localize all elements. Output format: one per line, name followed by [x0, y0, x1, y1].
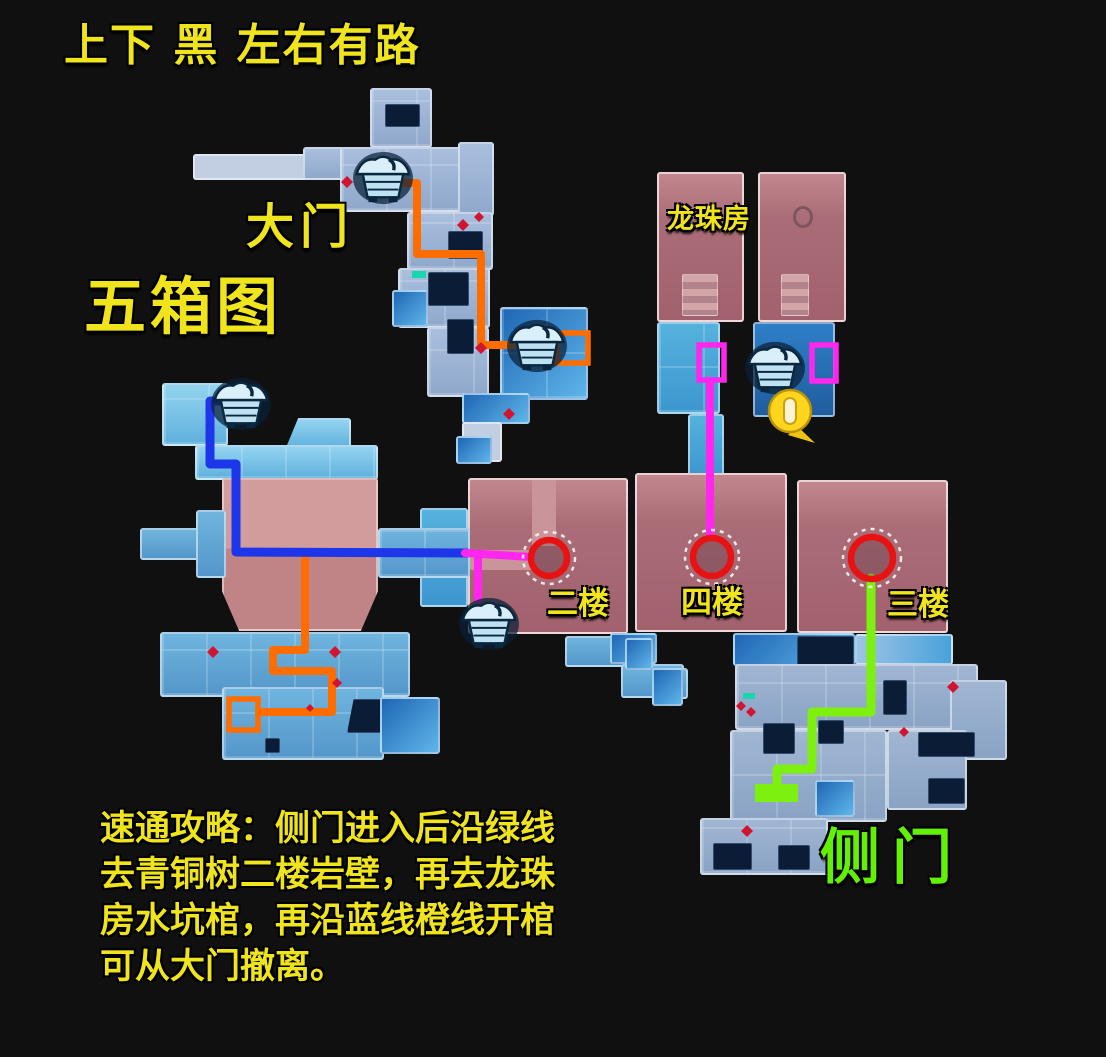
- guide-line: 速通攻略：侧门进入后沿绿线: [100, 806, 555, 852]
- game-map-screenshot: 上下 黑 左右有路 大门 五箱图 龙珠房 二楼 四楼 三楼 侧门 速通攻略：侧门…: [0, 0, 1106, 1057]
- loot-spot-rect-marker: [699, 345, 724, 380]
- guide-line: 去青铜树二楼岩壁，再去龙珠: [100, 852, 555, 898]
- treasure-chest-icon: [745, 342, 805, 394]
- teal-door-marker: [412, 271, 426, 278]
- entry-point-circle-marker: [685, 530, 739, 584]
- floor-3-label: 三楼: [887, 590, 949, 621]
- guide-line: 可从大门撤离。: [100, 944, 555, 990]
- treasure-chest-icon: [507, 320, 567, 372]
- entry-point-circle-marker: [523, 532, 575, 584]
- hint-text: 上下 黑 左右有路: [64, 24, 421, 68]
- floor-2-label: 二楼: [547, 589, 609, 620]
- treasure-chest-icon: [459, 598, 519, 650]
- teal-door-marker: [743, 693, 755, 699]
- treasure-chest-icon: [353, 152, 413, 204]
- route-orange-gate: [399, 183, 516, 345]
- guide-line: 房水坑棺，再沿蓝线橙线开棺: [100, 898, 555, 944]
- route-green: [777, 578, 871, 786]
- entry-point-circle-marker: [843, 529, 901, 587]
- floor-4-label: 四楼: [681, 588, 743, 619]
- dragon-ball-room-label: 龙珠房: [667, 206, 751, 233]
- speedrun-guide-text: 速通攻略：侧门进入后沿绿线 去青铜树二楼岩壁，再去龙珠 房水坑棺，再沿蓝线橙线开…: [100, 806, 555, 990]
- side-door-marker: [755, 784, 798, 802]
- side-door-label: 侧门: [820, 828, 964, 888]
- treasure-chest-icon: [211, 378, 271, 430]
- loot-spot-rect-marker: [229, 699, 258, 730]
- route-orange-ruins: [259, 556, 332, 712]
- enemy-dot-markers: [207, 176, 959, 837]
- loot-spot-rect-marker: [812, 345, 836, 381]
- main-gate-label: 大门: [246, 203, 354, 251]
- coin-marker-icon: [769, 390, 815, 443]
- map-title: 五箱图: [84, 276, 282, 338]
